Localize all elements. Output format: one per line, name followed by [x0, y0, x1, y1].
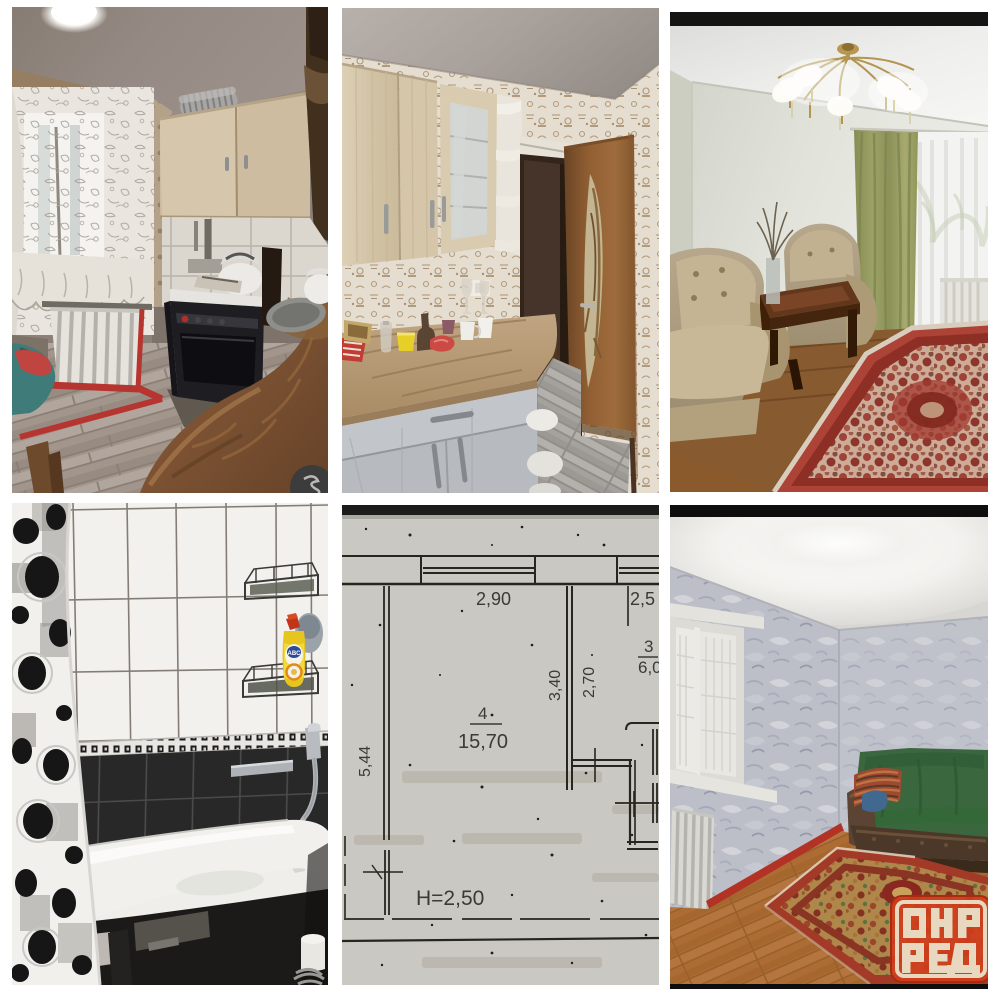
svg-text:ABC: ABC	[288, 651, 302, 657]
svg-text:4: 4	[478, 704, 487, 723]
svg-text:H=2,50: H=2,50	[416, 887, 484, 910]
svg-text:2,70: 2,70	[581, 667, 598, 698]
svg-text:2,5: 2,5	[630, 589, 655, 609]
svg-text:6,0: 6,0	[638, 658, 659, 677]
svg-text:3,40: 3,40	[547, 670, 564, 701]
svg-text:15,70: 15,70	[458, 731, 508, 753]
svg-text:5,44: 5,44	[357, 746, 374, 777]
svg-text:2,90: 2,90	[476, 589, 511, 609]
svg-text:3: 3	[644, 637, 653, 656]
